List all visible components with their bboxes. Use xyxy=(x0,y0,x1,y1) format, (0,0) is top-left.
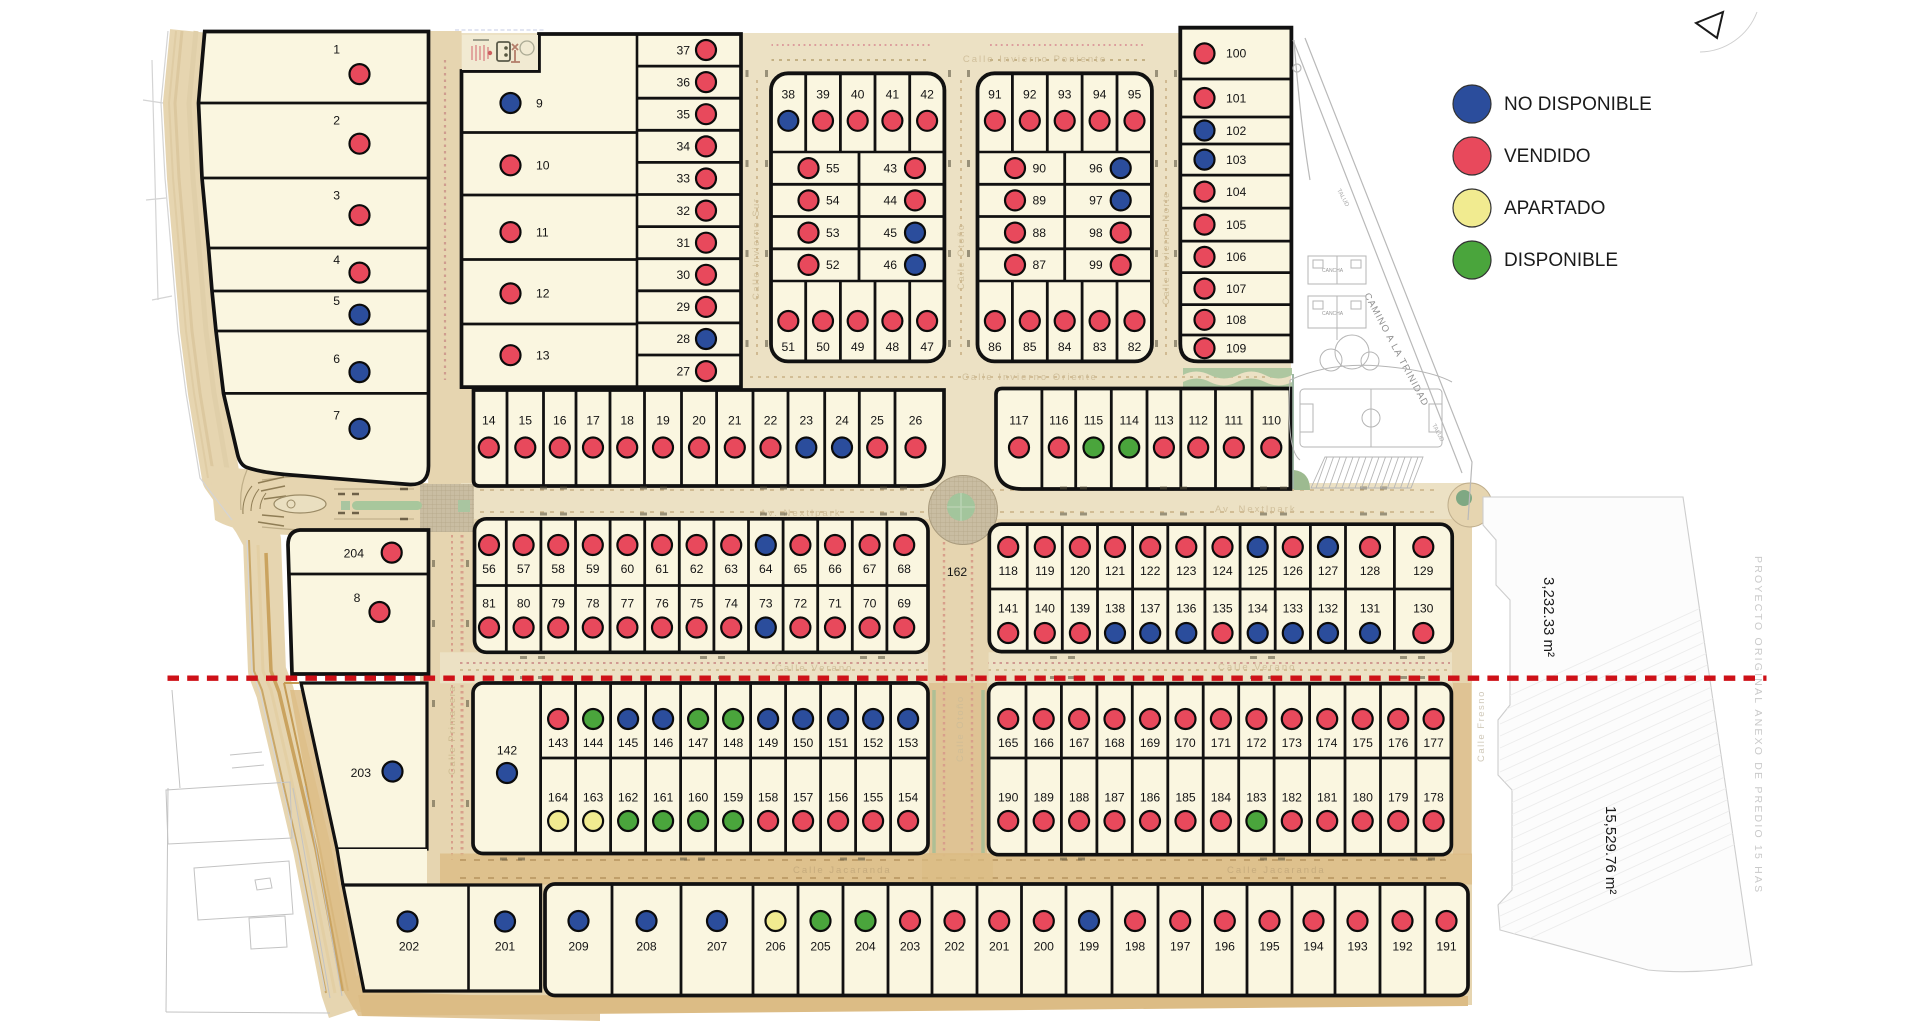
svg-text:75: 75 xyxy=(690,596,704,610)
svg-text:41: 41 xyxy=(886,87,900,101)
svg-text:Calle Jacaranda: Calle Jacaranda xyxy=(793,865,892,876)
svg-text:201: 201 xyxy=(495,939,516,953)
svg-text:126: 126 xyxy=(1283,564,1304,578)
svg-text:Calle Jacaranda: Calle Jacaranda xyxy=(1227,865,1326,876)
svg-text:128: 128 xyxy=(1360,564,1381,578)
svg-text:48: 48 xyxy=(886,340,900,354)
svg-text:188: 188 xyxy=(1069,790,1090,804)
svg-text:16: 16 xyxy=(553,413,567,427)
svg-text:Calle Invierno Oriente: Calle Invierno Oriente xyxy=(962,372,1098,383)
svg-text:39: 39 xyxy=(816,87,830,101)
svg-text:85: 85 xyxy=(1023,340,1037,354)
svg-text:77: 77 xyxy=(621,596,635,610)
svg-text:23: 23 xyxy=(800,413,814,427)
svg-text:83: 83 xyxy=(1093,340,1107,354)
svg-text:197: 197 xyxy=(1170,939,1191,953)
svg-text:45: 45 xyxy=(883,226,897,240)
svg-text:40: 40 xyxy=(851,87,865,101)
svg-text:Calle Fresno: Calle Fresno xyxy=(1476,690,1487,762)
svg-text:30: 30 xyxy=(676,268,690,282)
svg-text:64: 64 xyxy=(759,562,773,576)
svg-text:200: 200 xyxy=(1034,939,1055,953)
svg-text:71: 71 xyxy=(828,596,842,610)
svg-text:84: 84 xyxy=(1058,340,1072,354)
svg-text:NO DISPONIBLE: NO DISPONIBLE xyxy=(1504,94,1652,115)
svg-text:145: 145 xyxy=(618,736,639,750)
svg-text:143: 143 xyxy=(548,736,569,750)
svg-text:140: 140 xyxy=(1035,601,1056,615)
svg-text:100: 100 xyxy=(1226,47,1247,61)
svg-text:163: 163 xyxy=(583,790,604,804)
svg-text:133: 133 xyxy=(1283,601,1304,615)
svg-text:42: 42 xyxy=(920,87,934,101)
svg-text:158: 158 xyxy=(758,790,779,804)
svg-text:Calle Invierno Norte: Calle Invierno Norte xyxy=(1161,191,1172,305)
svg-text:60: 60 xyxy=(621,562,635,576)
svg-text:89: 89 xyxy=(1033,194,1047,208)
svg-text:4: 4 xyxy=(333,253,340,267)
svg-text:Calle Verano: Calle Verano xyxy=(1218,662,1296,673)
svg-text:104: 104 xyxy=(1226,185,1247,199)
svg-text:161: 161 xyxy=(653,790,674,804)
svg-text:74: 74 xyxy=(724,596,738,610)
svg-text:VENDIDO: VENDIDO xyxy=(1504,146,1591,167)
svg-text:135: 135 xyxy=(1212,601,1233,615)
svg-text:57: 57 xyxy=(517,562,531,576)
svg-text:166: 166 xyxy=(1034,736,1055,750)
svg-text:DISPONIBLE: DISPONIBLE xyxy=(1504,250,1618,271)
svg-text:13: 13 xyxy=(536,349,550,363)
svg-text:136: 136 xyxy=(1176,601,1197,615)
svg-text:119: 119 xyxy=(1035,564,1055,578)
svg-text:54: 54 xyxy=(826,194,840,208)
svg-text:102: 102 xyxy=(1226,124,1247,138)
svg-text:66: 66 xyxy=(828,562,842,576)
svg-text:69: 69 xyxy=(897,596,911,610)
svg-text:165: 165 xyxy=(998,736,1019,750)
svg-text:131: 131 xyxy=(1360,601,1381,615)
svg-text:120: 120 xyxy=(1070,564,1091,578)
svg-text:169: 169 xyxy=(1140,736,1161,750)
svg-text:96: 96 xyxy=(1089,161,1103,175)
svg-text:90: 90 xyxy=(1033,161,1047,175)
svg-text:113: 113 xyxy=(1154,413,1174,427)
svg-text:204: 204 xyxy=(855,939,876,953)
svg-text:124: 124 xyxy=(1212,564,1233,578)
svg-text:33: 33 xyxy=(676,172,690,186)
svg-text:18: 18 xyxy=(620,413,634,427)
svg-text:208: 208 xyxy=(636,939,657,953)
svg-text:198: 198 xyxy=(1125,939,1146,953)
svg-text:Calle Otoño: Calle Otoño xyxy=(955,695,966,762)
svg-text:206: 206 xyxy=(765,939,786,953)
svg-text:151: 151 xyxy=(828,736,849,750)
svg-text:154: 154 xyxy=(898,790,919,804)
svg-text:17: 17 xyxy=(586,413,600,427)
svg-text:TALUD: TALUD xyxy=(1335,188,1350,208)
svg-text:36: 36 xyxy=(676,75,690,89)
svg-text:Calle Primavera: Calle Primavera xyxy=(447,685,458,775)
svg-text:109: 109 xyxy=(1226,342,1247,356)
svg-text:9: 9 xyxy=(536,96,543,110)
svg-text:125: 125 xyxy=(1248,564,1269,578)
svg-text:12: 12 xyxy=(536,287,550,301)
svg-text:180: 180 xyxy=(1353,790,1374,804)
svg-text:63: 63 xyxy=(724,562,738,576)
svg-text:177: 177 xyxy=(1423,736,1444,750)
svg-text:193: 193 xyxy=(1347,939,1368,953)
svg-text:155: 155 xyxy=(863,790,884,804)
svg-text:49: 49 xyxy=(851,340,865,354)
svg-text:27: 27 xyxy=(676,364,690,378)
svg-text:10: 10 xyxy=(536,159,550,173)
svg-text:168: 168 xyxy=(1104,736,1125,750)
svg-text:19: 19 xyxy=(656,413,670,427)
svg-text:192: 192 xyxy=(1392,939,1413,953)
svg-text:132: 132 xyxy=(1318,601,1339,615)
svg-text:202: 202 xyxy=(399,939,420,953)
svg-text:98: 98 xyxy=(1089,226,1103,240)
svg-text:79: 79 xyxy=(551,596,565,610)
svg-text:24: 24 xyxy=(835,413,849,427)
svg-text:106: 106 xyxy=(1226,250,1247,264)
svg-text:86: 86 xyxy=(988,340,1002,354)
svg-text:76: 76 xyxy=(655,596,669,610)
svg-text:121: 121 xyxy=(1105,564,1126,578)
svg-text:14: 14 xyxy=(482,413,496,427)
svg-text:174: 174 xyxy=(1317,736,1338,750)
svg-text:Calle Verano: Calle Verano xyxy=(775,663,853,674)
svg-text:181: 181 xyxy=(1317,790,1338,804)
svg-text:62: 62 xyxy=(690,562,704,576)
svg-text:Calle Invierno Poniente: Calle Invierno Poniente xyxy=(963,54,1107,65)
svg-text:191: 191 xyxy=(1436,939,1457,953)
svg-text:123: 123 xyxy=(1176,564,1197,578)
svg-text:152: 152 xyxy=(863,736,884,750)
svg-text:148: 148 xyxy=(723,736,744,750)
svg-text:207: 207 xyxy=(707,939,728,953)
svg-text:35: 35 xyxy=(676,108,690,122)
svg-text:156: 156 xyxy=(828,790,849,804)
svg-text:187: 187 xyxy=(1104,790,1125,804)
svg-text:5: 5 xyxy=(333,294,340,308)
svg-text:Calle Otoño: Calle Otoño xyxy=(956,223,967,290)
svg-text:114: 114 xyxy=(1119,413,1139,427)
svg-text:115: 115 xyxy=(1084,413,1104,427)
svg-text:50: 50 xyxy=(816,340,830,354)
svg-text:203: 203 xyxy=(351,766,372,780)
svg-text:26: 26 xyxy=(909,413,923,427)
svg-text:20: 20 xyxy=(692,413,706,427)
svg-text:28: 28 xyxy=(676,332,690,346)
svg-text:170: 170 xyxy=(1175,736,1196,750)
svg-text:194: 194 xyxy=(1303,939,1324,953)
svg-text:178: 178 xyxy=(1423,790,1444,804)
svg-text:53: 53 xyxy=(826,226,840,240)
svg-text:PROYECTO ORIGINAL ANEXO DE PR: PROYECTO ORIGINAL ANEXO DE PREDIO 15 HAS xyxy=(1752,556,1764,894)
svg-text:160: 160 xyxy=(688,790,709,804)
svg-text:CANCHA: CANCHA xyxy=(1322,268,1344,274)
svg-text:162: 162 xyxy=(618,790,639,804)
svg-text:149: 149 xyxy=(758,736,779,750)
svg-text:58: 58 xyxy=(551,562,565,576)
svg-text:78: 78 xyxy=(586,596,600,610)
svg-text:92: 92 xyxy=(1023,87,1037,101)
svg-text:72: 72 xyxy=(794,596,808,610)
svg-text:94: 94 xyxy=(1093,87,1107,101)
svg-text:32: 32 xyxy=(676,204,690,218)
svg-text:CANCHA: CANCHA xyxy=(1322,311,1344,317)
svg-text:138: 138 xyxy=(1105,601,1126,615)
svg-text:21: 21 xyxy=(728,413,742,427)
svg-text:209: 209 xyxy=(568,939,589,953)
svg-text:29: 29 xyxy=(676,300,690,314)
svg-text:130: 130 xyxy=(1413,601,1434,615)
svg-text:182: 182 xyxy=(1282,790,1303,804)
svg-text:105: 105 xyxy=(1226,218,1247,232)
svg-text:44: 44 xyxy=(883,194,897,208)
svg-text:65: 65 xyxy=(794,562,808,576)
svg-text:3: 3 xyxy=(333,189,340,203)
svg-text:139: 139 xyxy=(1070,601,1091,615)
svg-text:34: 34 xyxy=(676,140,690,154)
svg-text:142: 142 xyxy=(497,743,518,757)
svg-text:159: 159 xyxy=(723,790,744,804)
svg-text:25: 25 xyxy=(870,413,884,427)
svg-text:15,529.76 m²: 15,529.76 m² xyxy=(1602,806,1619,894)
svg-text:134: 134 xyxy=(1248,601,1269,615)
svg-text:186: 186 xyxy=(1140,790,1161,804)
svg-text:150: 150 xyxy=(793,736,814,750)
svg-text:157: 157 xyxy=(793,790,814,804)
svg-text:189: 189 xyxy=(1034,790,1055,804)
svg-text:201: 201 xyxy=(989,939,1010,953)
svg-text:116: 116 xyxy=(1049,413,1069,427)
svg-text:184: 184 xyxy=(1211,790,1232,804)
svg-text:103: 103 xyxy=(1226,153,1247,167)
svg-text:93: 93 xyxy=(1058,87,1072,101)
svg-text:61: 61 xyxy=(655,562,669,576)
svg-text:46: 46 xyxy=(883,258,897,272)
svg-text:108: 108 xyxy=(1226,313,1247,327)
svg-text:183: 183 xyxy=(1246,790,1267,804)
svg-text:110: 110 xyxy=(1262,413,1282,427)
svg-text:204: 204 xyxy=(344,547,365,561)
svg-text:38: 38 xyxy=(782,87,796,101)
svg-text:199: 199 xyxy=(1079,939,1100,953)
svg-text:73: 73 xyxy=(759,596,773,610)
svg-text:196: 196 xyxy=(1215,939,1236,953)
svg-text:6: 6 xyxy=(333,352,340,366)
svg-text:8: 8 xyxy=(354,591,361,605)
svg-text:195: 195 xyxy=(1259,939,1280,953)
svg-text:172: 172 xyxy=(1246,736,1267,750)
svg-text:205: 205 xyxy=(810,939,831,953)
svg-text:81: 81 xyxy=(482,596,496,610)
svg-text:112: 112 xyxy=(1188,413,1208,427)
svg-text:7: 7 xyxy=(333,409,340,423)
svg-text:118: 118 xyxy=(998,564,1018,578)
svg-text:43: 43 xyxy=(883,161,897,175)
svg-text:153: 153 xyxy=(898,736,919,750)
svg-text:80: 80 xyxy=(517,596,531,610)
svg-text:117: 117 xyxy=(1009,413,1029,427)
svg-text:70: 70 xyxy=(863,596,877,610)
svg-text:31: 31 xyxy=(676,236,690,250)
svg-text:1: 1 xyxy=(333,43,340,57)
svg-text:99: 99 xyxy=(1089,258,1103,272)
svg-text:TALUD: TALUD xyxy=(1430,423,1445,443)
svg-text:173: 173 xyxy=(1282,736,1303,750)
svg-text:171: 171 xyxy=(1211,736,1232,750)
svg-text:CAMINO A LA TRINIDAD: CAMINO A LA TRINIDAD xyxy=(1361,291,1430,408)
svg-text:144: 144 xyxy=(583,736,604,750)
svg-text:101: 101 xyxy=(1226,91,1247,105)
svg-text:67: 67 xyxy=(863,562,877,576)
svg-text:95: 95 xyxy=(1128,87,1142,101)
svg-text:111: 111 xyxy=(1225,413,1244,427)
svg-text:147: 147 xyxy=(688,736,709,750)
svg-text:107: 107 xyxy=(1226,282,1247,296)
svg-text:164: 164 xyxy=(548,790,569,804)
svg-text:11: 11 xyxy=(536,225,549,239)
svg-text:122: 122 xyxy=(1140,564,1161,578)
svg-text:202: 202 xyxy=(944,939,965,953)
svg-text:68: 68 xyxy=(897,562,911,576)
svg-text:129: 129 xyxy=(1413,564,1434,578)
svg-text:167: 167 xyxy=(1069,736,1090,750)
svg-text:137: 137 xyxy=(1140,601,1161,615)
svg-text:56: 56 xyxy=(482,562,496,576)
svg-text:88: 88 xyxy=(1033,226,1047,240)
svg-text:52: 52 xyxy=(826,258,840,272)
svg-text:91: 91 xyxy=(988,87,1002,101)
svg-text:37: 37 xyxy=(676,43,690,57)
svg-text:Calle Invierno Sur: Calle Invierno Sur xyxy=(751,197,762,300)
svg-text:15: 15 xyxy=(519,413,533,427)
svg-text:59: 59 xyxy=(586,562,600,576)
svg-text:190: 190 xyxy=(998,790,1019,804)
svg-text:203: 203 xyxy=(900,939,921,953)
svg-text:87: 87 xyxy=(1033,258,1047,272)
svg-text:3,232.33 m²: 3,232.33 m² xyxy=(1540,577,1557,657)
svg-text:185: 185 xyxy=(1175,790,1196,804)
svg-text:176: 176 xyxy=(1388,736,1409,750)
svg-text:55: 55 xyxy=(826,161,840,175)
svg-text:97: 97 xyxy=(1089,194,1103,208)
svg-text:127: 127 xyxy=(1318,564,1339,578)
svg-text:APARTADO: APARTADO xyxy=(1504,198,1605,219)
svg-text:162: 162 xyxy=(947,565,968,579)
svg-text:22: 22 xyxy=(764,413,778,427)
svg-text:82: 82 xyxy=(1128,340,1142,354)
svg-text:146: 146 xyxy=(653,736,674,750)
svg-text:141: 141 xyxy=(998,601,1019,615)
svg-text:175: 175 xyxy=(1353,736,1374,750)
svg-text:179: 179 xyxy=(1388,790,1409,804)
svg-text:2: 2 xyxy=(333,114,340,128)
svg-text:47: 47 xyxy=(920,340,934,354)
svg-text:51: 51 xyxy=(782,340,796,354)
